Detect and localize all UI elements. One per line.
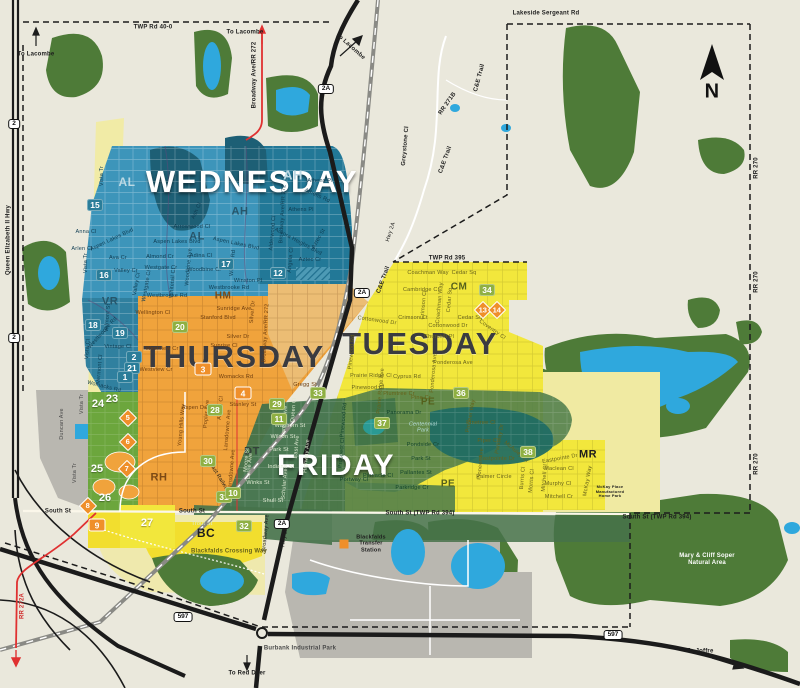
street-label: Churchill Pl (424, 334, 454, 340)
map-labels-layer: WEDNESDAYTHURSDAYTUESDAYFRIDAYAHALAHALVR… (0, 0, 800, 688)
street-label: Cottonwood Dr (428, 323, 467, 329)
street-label: Pine Cr (411, 395, 431, 401)
street-label: Lorne Ave (246, 453, 255, 480)
street-label: Young Hills Way (177, 403, 187, 446)
street-label: Ponderosa Ave (433, 360, 473, 366)
boundary-road-label: South St (TWP Rd 394) (385, 511, 454, 518)
street-label: Westbrooke Rd (147, 293, 187, 299)
street-label: Athens Pl (288, 207, 313, 213)
route-number: 27 (141, 517, 153, 529)
landmark-label: Burbank Industrial Park (264, 646, 336, 653)
direction-label: To Joffre (686, 649, 713, 656)
route-badge-green: 20 (172, 321, 188, 333)
street-label: Winks St (246, 480, 269, 486)
landmark-label: McKay Place Manufactured Home Park (596, 485, 625, 499)
highway-shield: 597 (604, 630, 623, 640)
route-badge-teal: 17 (218, 258, 234, 270)
route-badge-teal: 1 (117, 371, 133, 383)
street-label: Morris Cl (528, 469, 536, 493)
street-label: Indiana St (268, 464, 295, 470)
neighborhood-code: HM (215, 290, 232, 302)
route-badge-diamond: 5 (119, 409, 137, 427)
boundary-road-label: C&E Trail (438, 145, 454, 174)
street-label: Vista Tr (99, 166, 105, 186)
street-label: Coachman Way (407, 270, 448, 276)
street-label: Hwy 2A (385, 221, 397, 242)
boundary-road-label: RR 271B (438, 91, 459, 116)
street-label: Eastpointe Dr (479, 456, 515, 462)
boundary-road-label: RR 270 (754, 271, 761, 293)
street-label: Mitchell Cl (541, 464, 550, 492)
street-label: Cedar Sq (446, 287, 454, 312)
boundary-road-label: TWP Rd 395 (429, 256, 466, 263)
street-label: Vista Tr (79, 394, 85, 414)
street-label: Park St (269, 447, 288, 453)
landmark-label: Centennial Park (409, 422, 437, 435)
route-badge-green: 38 (520, 446, 536, 458)
route-badge-green: 11 (271, 413, 287, 425)
landmark-label: Blackfalds Crossing Way (191, 549, 267, 556)
boundary-road-label: C&E Trail (473, 63, 487, 92)
street-label: Cottonwood Dr (357, 315, 397, 327)
street-label: Cedar Sq (452, 270, 477, 276)
street-label: Valley Cl (132, 272, 142, 296)
route-badge-green: 30 (200, 455, 216, 467)
street-label: Ash Cl (190, 202, 203, 220)
direction-label: To Red Deer (228, 671, 265, 678)
route-badge-teal: 16 (96, 269, 112, 281)
street-label: Aspen Lakes Blvd (153, 239, 200, 245)
street-label: Broadway Ave (261, 514, 271, 552)
route-badge-green: 36 (453, 387, 469, 399)
street-label: Westbrooke Rd (209, 285, 249, 291)
boundary-road-label: TWP Rd 40-0 (134, 25, 173, 32)
street-label: Womacks Rd (219, 374, 254, 380)
day-zone-label: TUESDAY (342, 326, 498, 362)
boundary-road-label: Lakeside Sergeant Rd (513, 11, 580, 18)
route-badge-green: 10 (225, 487, 241, 499)
boundary-road-label: Queen Elizabeth II Hwy (6, 205, 13, 275)
neighborhood-code: MR (579, 449, 597, 462)
street-label: Ava Cr (109, 255, 127, 261)
street-label: Mitchell Cr (545, 494, 573, 500)
street-label: Aztec St (311, 228, 328, 250)
street-label: Plumtree Cr (383, 391, 415, 397)
street-label: Winston Pl (234, 278, 262, 284)
highway-shield: 2A (354, 288, 370, 298)
collection-day-map: WEDNESDAYTHURSDAYTUESDAYFRIDAYAHALAHALVR… (0, 0, 800, 688)
boundary-road-label: C&E Trail (376, 265, 392, 294)
street-label: Murphy Cl (545, 481, 572, 487)
route-badge-diamond: 14 (488, 301, 506, 319)
neighborhood-code: AH (232, 206, 249, 219)
street-label: Woodbine Cl (187, 267, 221, 273)
route-badge-diamond: 8 (79, 497, 97, 515)
route-badge-green: 32 (236, 520, 252, 532)
street-label: Silver Dr (249, 300, 257, 323)
street-label: Westview Cr (140, 367, 173, 373)
street-label: Anna Cl (76, 229, 97, 235)
neighborhood-code: BC (197, 527, 215, 541)
route-badge-green: 29 (269, 398, 285, 410)
street-label: Aztec Cr (299, 257, 322, 263)
street-label: Panorama Dr (387, 410, 422, 416)
street-label: Portway Cl (340, 477, 369, 483)
highway-shield: 2 (8, 333, 20, 343)
street-label: Valley Cr (114, 268, 138, 274)
route-number: 26 (99, 492, 111, 504)
boundary-road-label: South St (TWP Rd 394) (622, 515, 691, 522)
neighborhood-code: AH (283, 169, 303, 184)
route-badge-green: 28 (207, 404, 223, 416)
street-label: Arrowwood Cl (174, 224, 211, 230)
street-label: Parkway Dr (494, 423, 505, 454)
street-label: Duncan Ave (59, 408, 65, 440)
boundary-road-label: Greystone Cl (401, 126, 411, 166)
street-label: Westview Cr (146, 346, 179, 352)
street-label: Crimson Ct (398, 315, 428, 321)
street-label: Pallantes St (400, 470, 432, 476)
neighborhood-code: PE (441, 478, 455, 490)
compass-north-label: N (705, 81, 720, 104)
transfer-station-icon (340, 540, 349, 549)
street-label: Almond Cr (146, 254, 174, 260)
route-number: 25 (91, 463, 103, 475)
route-badge-teal: 12 (270, 267, 286, 279)
street-label: Hwy 2A (280, 527, 290, 548)
street-label: Silver Dr (227, 334, 250, 340)
street-label: Pinewood Rd (339, 402, 348, 437)
route-badge-green: 33 (310, 387, 326, 399)
route-badge-orange: 9 (89, 519, 106, 532)
street-label: Cyprus Rd (393, 374, 421, 380)
street-label: Wellington Cl (136, 310, 171, 316)
street-label: Schular Ave (280, 468, 289, 500)
street-label: Pioneer Way (465, 399, 477, 433)
direction-label: To Lacombe (227, 30, 264, 37)
route-badge-teal: 19 (112, 327, 128, 339)
street-label: Sunrise Cl (210, 343, 237, 349)
highway-shield: 2A (318, 84, 334, 94)
boundary-road-label: South St (45, 509, 71, 516)
route-number: 24 (92, 398, 104, 410)
neighborhood-code: AL (119, 176, 136, 190)
highway-shield: 2A (274, 519, 290, 529)
route-badge-teal: 18 (85, 319, 101, 331)
boundary-road-label: RR 270 (754, 157, 761, 179)
street-label: Sunridge Ave (216, 306, 251, 312)
boundary-road-label: South St (179, 509, 205, 516)
route-badge-orange: 3 (195, 363, 212, 376)
direction-label: To Lacombe (334, 32, 366, 62)
street-label: Stanford Blvd (200, 315, 236, 321)
landmark-label: Blackfalds Transfer Station (356, 535, 386, 554)
landmark-label: Mary & Cliff Soper Natural Area (679, 553, 735, 567)
street-label: Park St (411, 456, 430, 462)
boundary-road-label: Broadway Ave/RR 272 (252, 42, 259, 109)
boundary-road-label: RR 272A (20, 593, 27, 619)
street-label: Vista Cl (84, 339, 92, 360)
route-number: 23 (106, 393, 118, 405)
neighborhood-code: RH (151, 472, 168, 485)
route-badge-diamond: 7 (118, 460, 136, 478)
highway-shield: 2 (8, 119, 20, 129)
street-label: McKay Way (582, 465, 594, 497)
route-badge-green: 37 (374, 417, 390, 429)
street-label: Stanley St (229, 402, 256, 408)
street-label: Pinewood Cl (351, 385, 384, 391)
street-label: Angela Cl (287, 247, 296, 273)
street-label: Queen Cl (290, 397, 298, 422)
street-label: Athens Pl (307, 178, 332, 184)
street-label: Vista Tr (72, 463, 78, 483)
street-label: Lansdowne Ave (227, 449, 237, 491)
street-label: Lansdowne Ave (223, 409, 233, 451)
boundary-road-label: RR 270 (754, 453, 761, 475)
route-badge-diamond: 6 (119, 433, 137, 451)
street-label: Vintage Cl (104, 344, 131, 350)
route-badge-green: 34 (479, 284, 495, 296)
street-label: Palmer Circle (476, 474, 512, 480)
street-label: Vista Tr (83, 253, 89, 273)
highway-shield: 597 (174, 612, 193, 622)
street-label: Trout St (192, 521, 213, 527)
direction-label: To Lacombe (18, 52, 55, 59)
street-label: Vermont Cl (96, 354, 105, 384)
street-label: Pondside Cr (407, 442, 439, 448)
route-badge-orange: 4 (235, 387, 252, 400)
route-badge-teal: 15 (87, 199, 103, 211)
street-label: Parkridge Cr (395, 485, 428, 491)
street-label: Burris Cl (519, 466, 527, 489)
